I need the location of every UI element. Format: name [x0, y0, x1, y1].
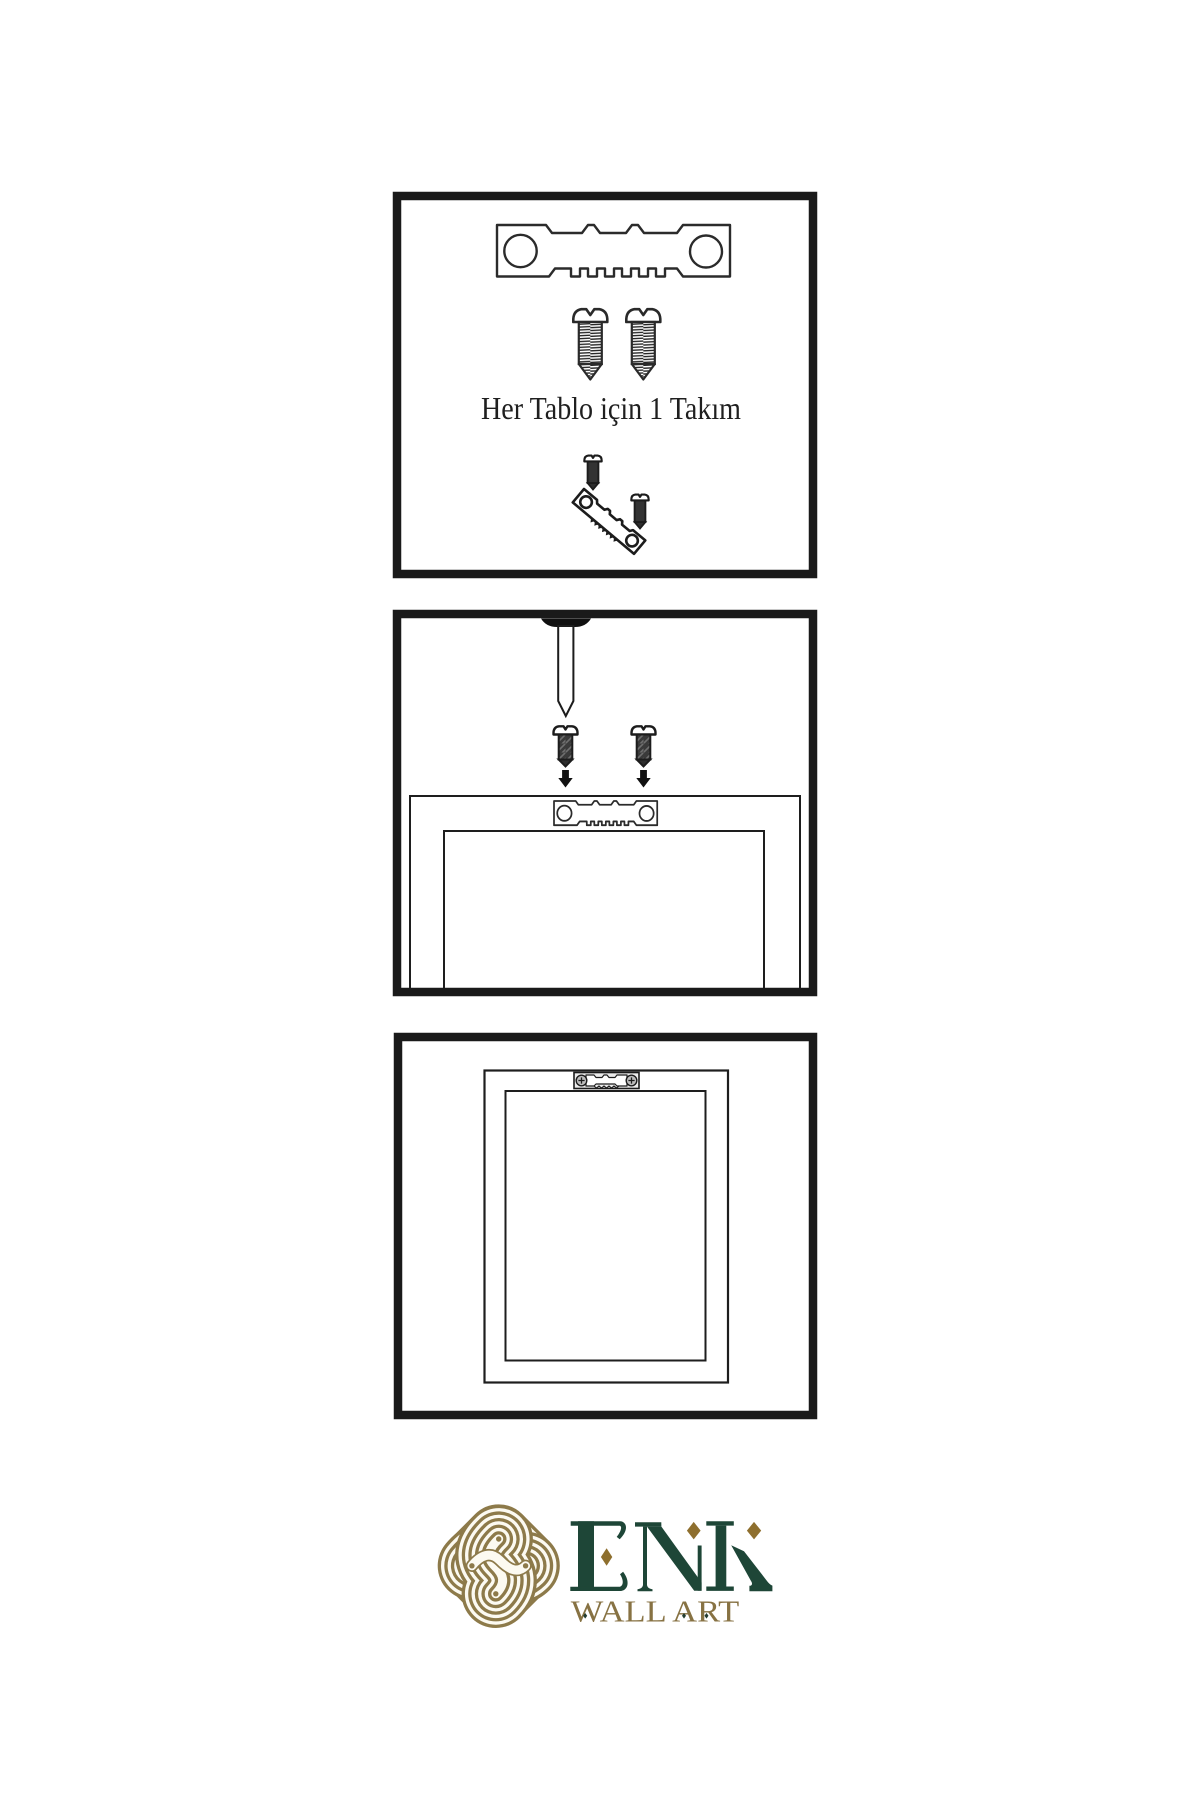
svg-text:Her Tablo için 1 Takım: Her Tablo için 1 Takım [481, 391, 741, 426]
svg-text:WALL ART: WALL ART [571, 1595, 740, 1629]
